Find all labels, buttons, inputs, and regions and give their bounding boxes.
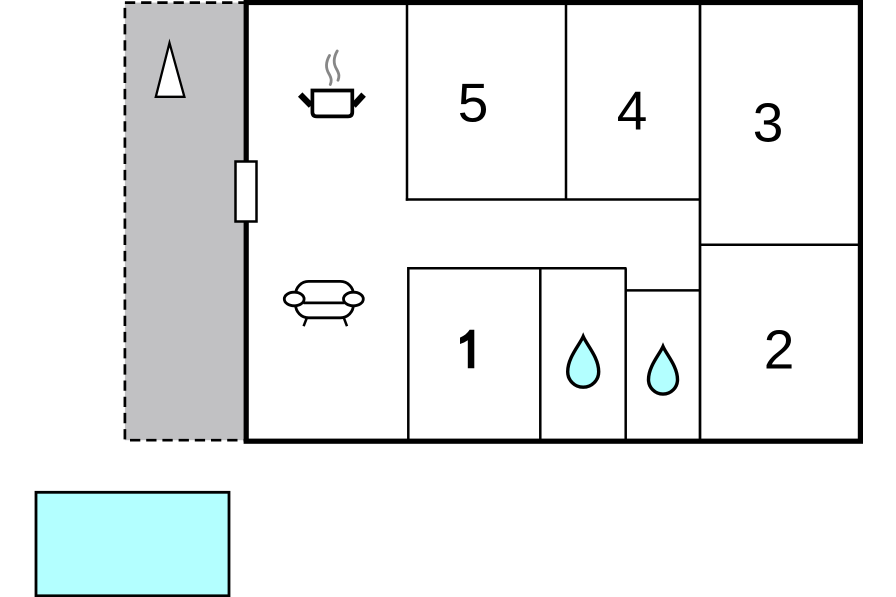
svg-text:2: 2 (764, 318, 795, 380)
svg-text:4: 4 (617, 79, 648, 141)
svg-text:5: 5 (458, 72, 489, 134)
svg-text:3: 3 (753, 91, 784, 153)
